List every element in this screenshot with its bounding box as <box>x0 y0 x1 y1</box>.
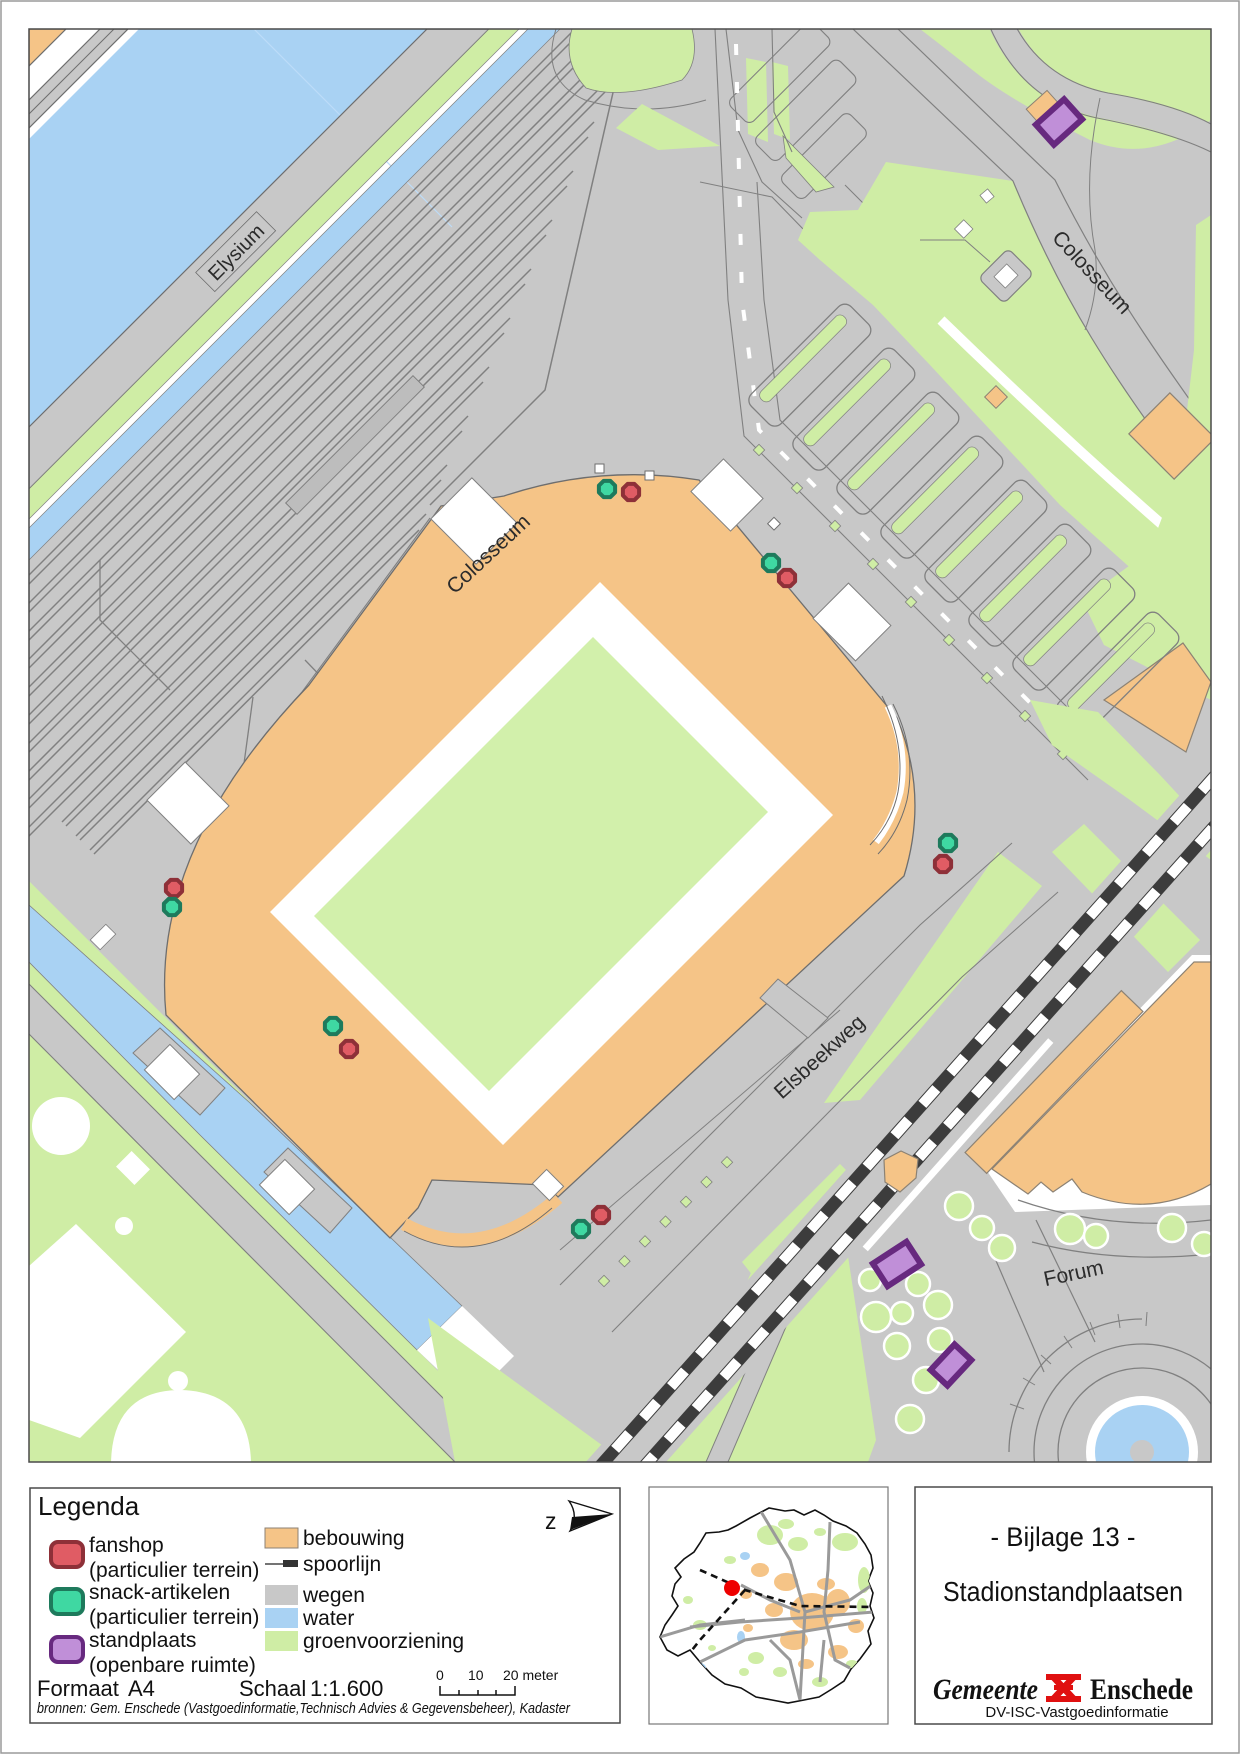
svg-text:- Bijlage 13 -: - Bijlage 13 - <box>991 1522 1136 1552</box>
svg-text:water: water <box>302 1607 354 1630</box>
svg-text:z: z <box>545 1508 557 1534</box>
svg-text:bronnen: Gem. Enschede (Vastgo: bronnen: Gem. Enschede (Vastgoedinformat… <box>37 1700 571 1717</box>
svg-text:wegen: wegen <box>302 1584 365 1607</box>
svg-text:Enschede: Enschede <box>1090 1673 1193 1706</box>
svg-text:(openbare ruimte): (openbare ruimte) <box>89 1654 256 1677</box>
svg-text:bebouwing: bebouwing <box>303 1527 405 1550</box>
svg-text:10: 10 <box>468 1667 484 1683</box>
svg-text:Stadionstandplaatsen: Stadionstandplaatsen <box>943 1576 1183 1607</box>
svg-text:Legenda: Legenda <box>38 1491 140 1521</box>
svg-text:Schaal: Schaal <box>239 1676 306 1701</box>
svg-text:Formaat: Formaat <box>37 1676 119 1701</box>
svg-text:standplaats: standplaats <box>89 1629 196 1652</box>
svg-text:fanshop: fanshop <box>89 1534 164 1557</box>
svg-text:snack-artikelen: snack-artikelen <box>89 1581 230 1604</box>
svg-text:Gemeente: Gemeente <box>933 1673 1038 1706</box>
svg-text:A4: A4 <box>128 1676 155 1701</box>
svg-text:(particulier terrein): (particulier terrein) <box>89 1559 259 1582</box>
svg-text:groenvoorziening: groenvoorziening <box>303 1630 464 1653</box>
svg-text:0: 0 <box>436 1667 444 1683</box>
svg-text:spoorlijn: spoorlijn <box>303 1553 381 1576</box>
svg-text:DV-ISC-Vastgoedinformatie: DV-ISC-Vastgoedinformatie <box>985 1704 1168 1721</box>
svg-text:(particulier terrein): (particulier terrein) <box>89 1606 259 1629</box>
svg-text:20 meter: 20 meter <box>503 1667 559 1683</box>
svg-text:1:1.600: 1:1.600 <box>310 1676 383 1701</box>
